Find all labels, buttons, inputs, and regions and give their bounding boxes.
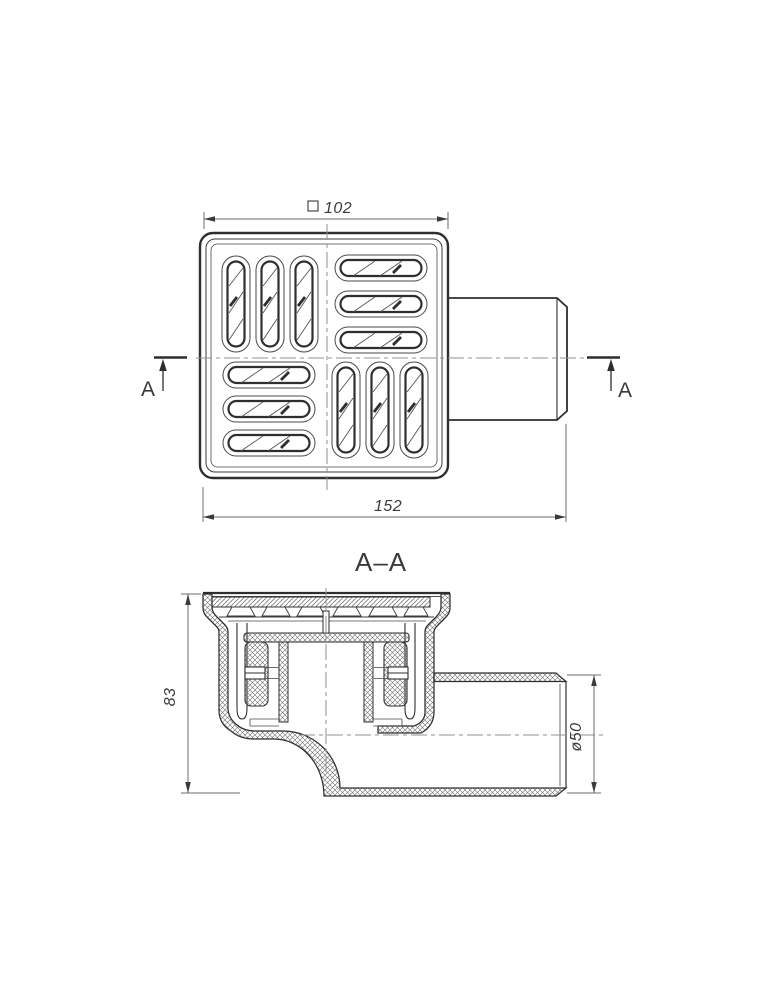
top-view: 102 152 A A [141, 200, 632, 522]
grate-slot [256, 256, 284, 352]
grate-slot [335, 291, 427, 317]
cup-clip-right [374, 667, 408, 679]
grate-slot [366, 362, 394, 458]
dimension-d50: ø50 [567, 675, 601, 793]
section-cut-marker-left: A [141, 358, 187, 402]
section-cut-marker-right: A [587, 358, 632, 403]
pipe-top-wall [434, 673, 566, 682]
dim-text-102: 102 [324, 200, 352, 217]
grate-slot [223, 396, 315, 422]
section-marker-letter: A [618, 379, 632, 402]
grate-slot [335, 327, 427, 353]
dim-text-83: 83 [162, 688, 179, 707]
cup-tube-wall-right [364, 642, 373, 722]
grate-slot [223, 362, 315, 388]
dimension-square-102: 102 [204, 200, 448, 229]
technical-drawing-floor-drain: 102 152 A A A–A [0, 0, 771, 1000]
grate-slot [222, 256, 250, 352]
outlet-pipe-top-view [448, 298, 567, 420]
cup-clip-left [245, 667, 279, 679]
grate-slot [332, 362, 360, 458]
drawing-svg: 102 152 A A A–A [0, 0, 771, 1000]
grate-slot [290, 256, 318, 352]
grate-slot [400, 362, 428, 458]
dim-text-d50: ø50 [568, 722, 585, 751]
section-title: A–A [355, 547, 407, 577]
square-symbol-icon [308, 201, 318, 211]
drain-grate [200, 233, 448, 478]
dim-text-152: 152 [374, 498, 402, 515]
grate-slot [335, 255, 427, 281]
cup-tube-wall-left [279, 642, 288, 722]
section-marker-letter: A [141, 378, 155, 401]
grate-slot [223, 430, 315, 456]
section-view-a-a: 83 ø50 [162, 588, 604, 796]
